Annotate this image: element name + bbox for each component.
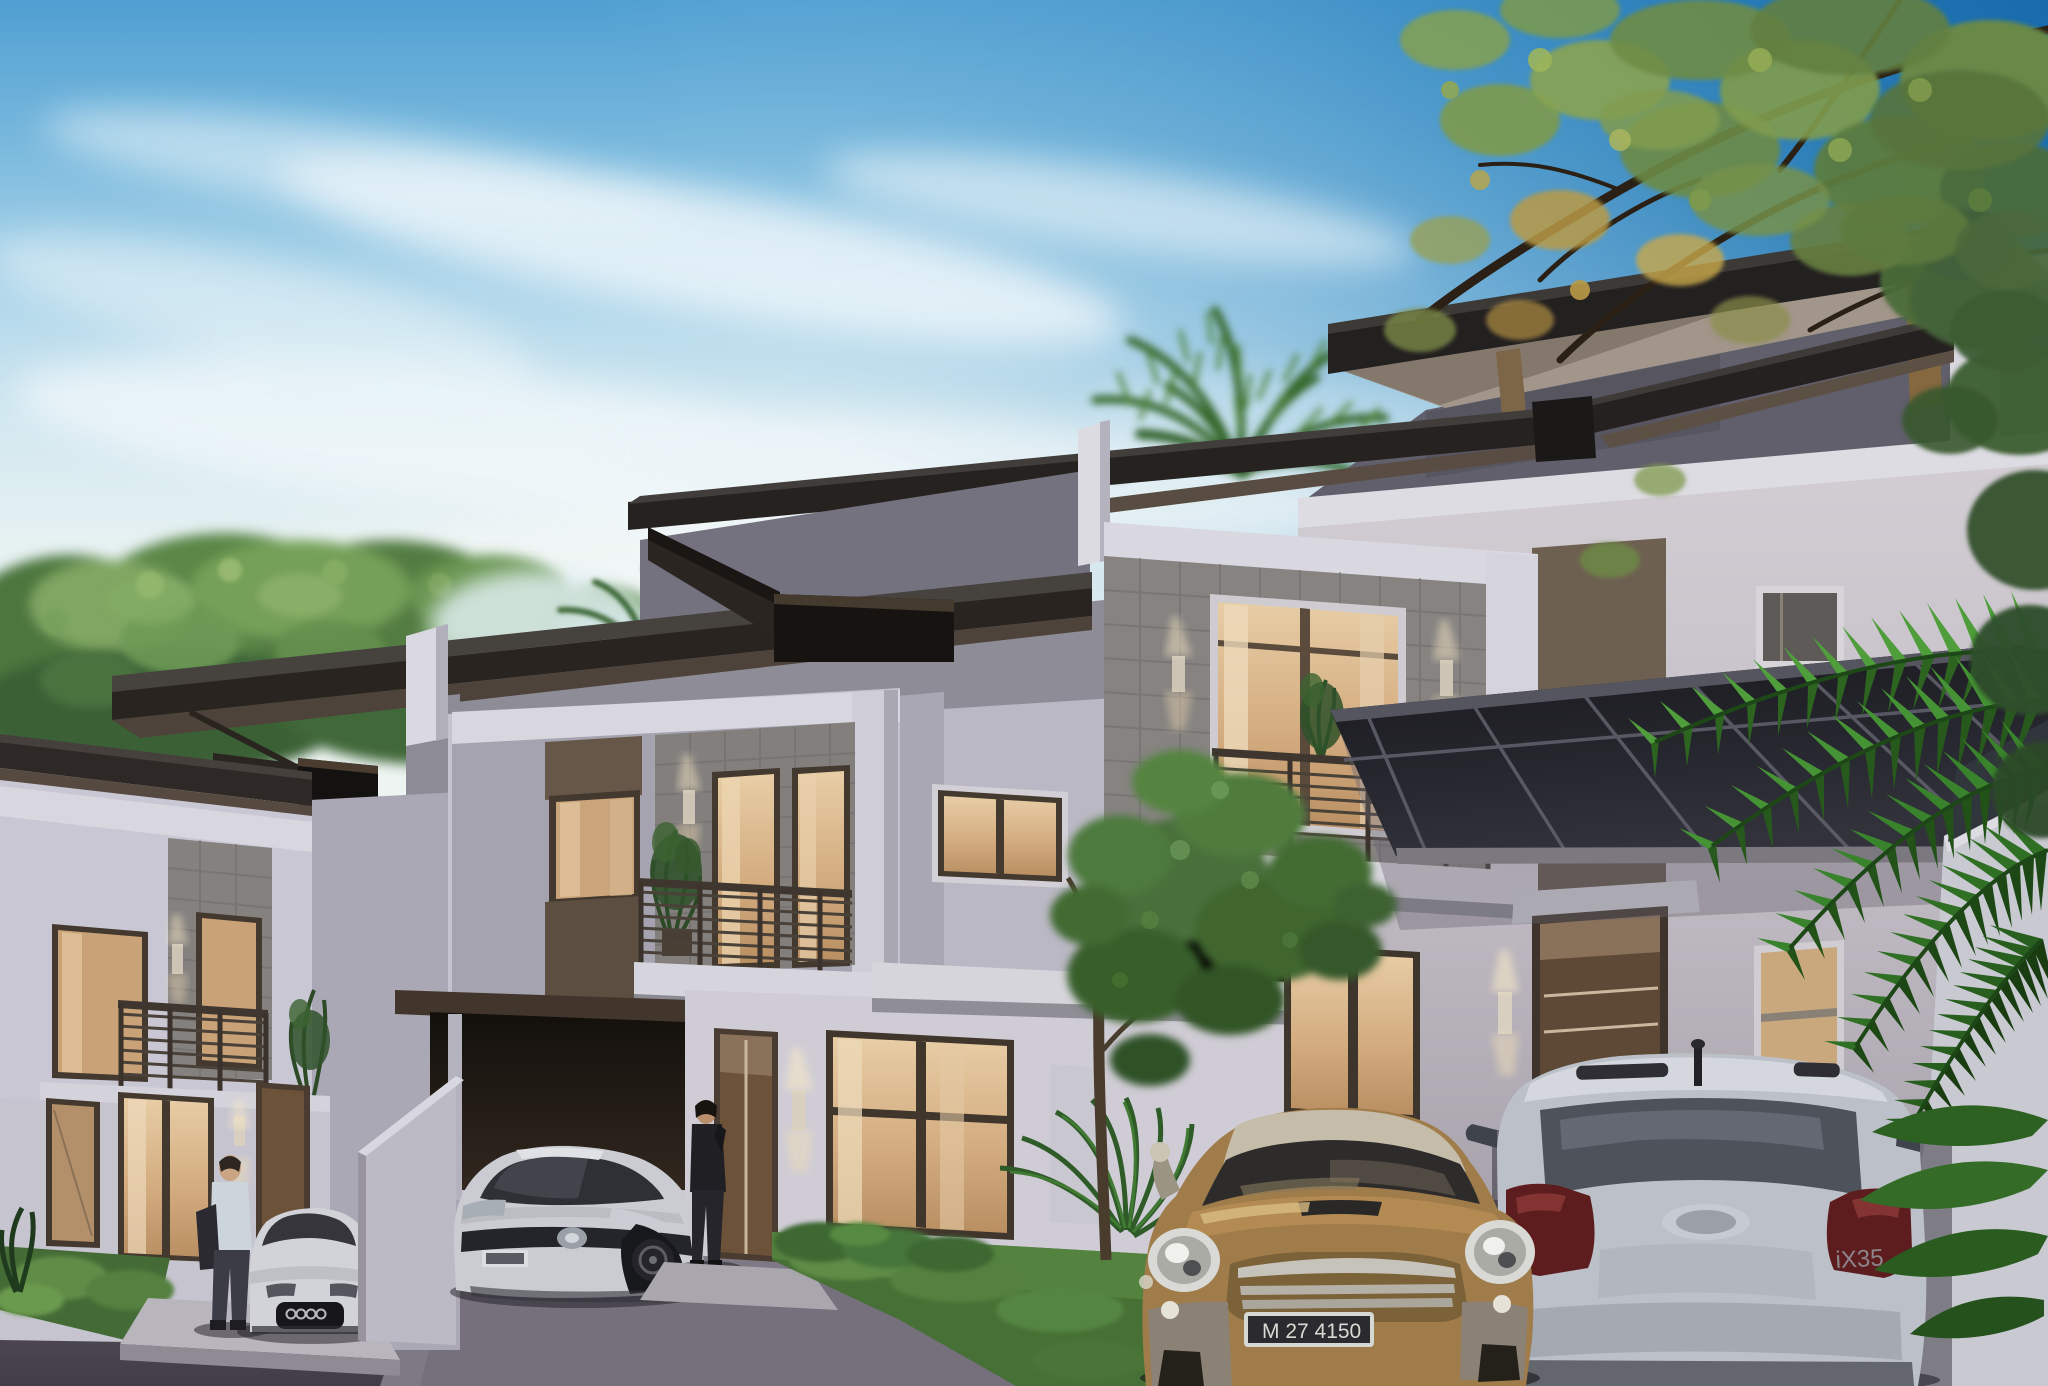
svg-text:M 27 4150: M 27 4150	[1262, 1320, 1361, 1343]
